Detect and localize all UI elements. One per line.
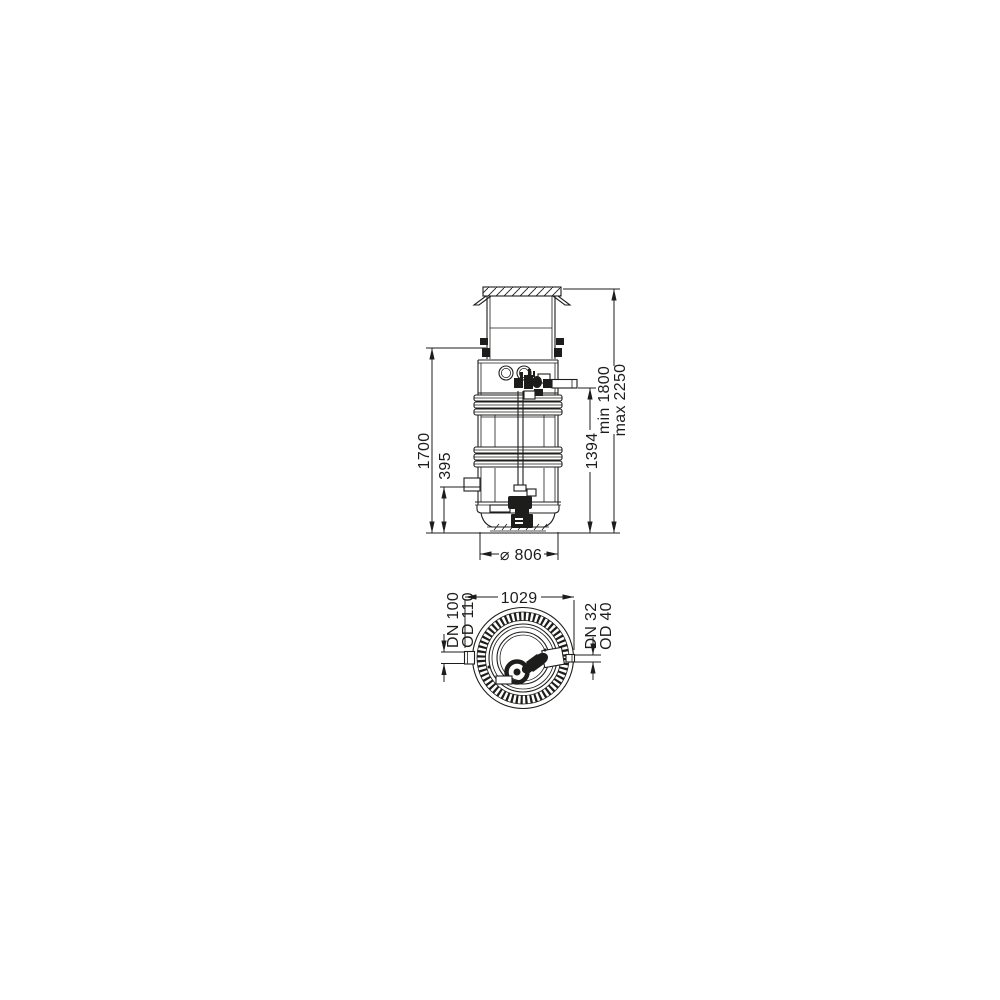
cover-skirt-left xyxy=(474,296,491,305)
inlet-stub xyxy=(464,478,480,491)
dim-outlet-height-label: 1394 xyxy=(584,433,601,470)
dim-diameter-label: ⌀ 806 xyxy=(500,547,542,564)
plan-outlet-stub xyxy=(566,655,575,663)
cover-slab xyxy=(474,287,570,305)
dim-total-max-label: max 2250 xyxy=(612,364,629,437)
telescopic-upper-section xyxy=(480,296,564,359)
plan-inlet-stub xyxy=(465,652,475,665)
pump-side-view xyxy=(508,489,536,528)
dim-total-min-label: min 1800 xyxy=(596,366,613,434)
clamp-right xyxy=(556,338,564,345)
drawing-canvas: 1700 395 1394 min 1800 max 2250 xyxy=(0,0,1000,1000)
dim-tank-height-label: 1700 xyxy=(416,433,433,470)
dim-overall-width-label: 1029 xyxy=(501,590,538,607)
outlet-pipe xyxy=(552,380,577,389)
dim-inlet-od-label: OD 110 xyxy=(460,592,477,648)
dim-diameter: ⌀ 806 xyxy=(480,532,558,564)
dim-outlet-od-label: OD 40 xyxy=(598,602,615,650)
dim-inlet-size: DN 100 OD 110 xyxy=(441,592,477,682)
dim-outlet-size: DN 32 OD 40 xyxy=(575,602,616,680)
clamp-left xyxy=(480,338,488,345)
plan-view: 1029 DN 100 OD 110 DN 32 OD 40 xyxy=(441,590,615,709)
technical-drawing: 1700 395 1394 min 1800 max 2250 xyxy=(0,0,1000,1000)
dim-inlet-height-label: 395 xyxy=(437,452,454,480)
pump-plan-view xyxy=(488,647,565,684)
side-elevation-view: 1700 395 1394 min 1800 max 2250 xyxy=(416,287,629,564)
dim-total-height: min 1800 max 2250 xyxy=(563,289,629,533)
